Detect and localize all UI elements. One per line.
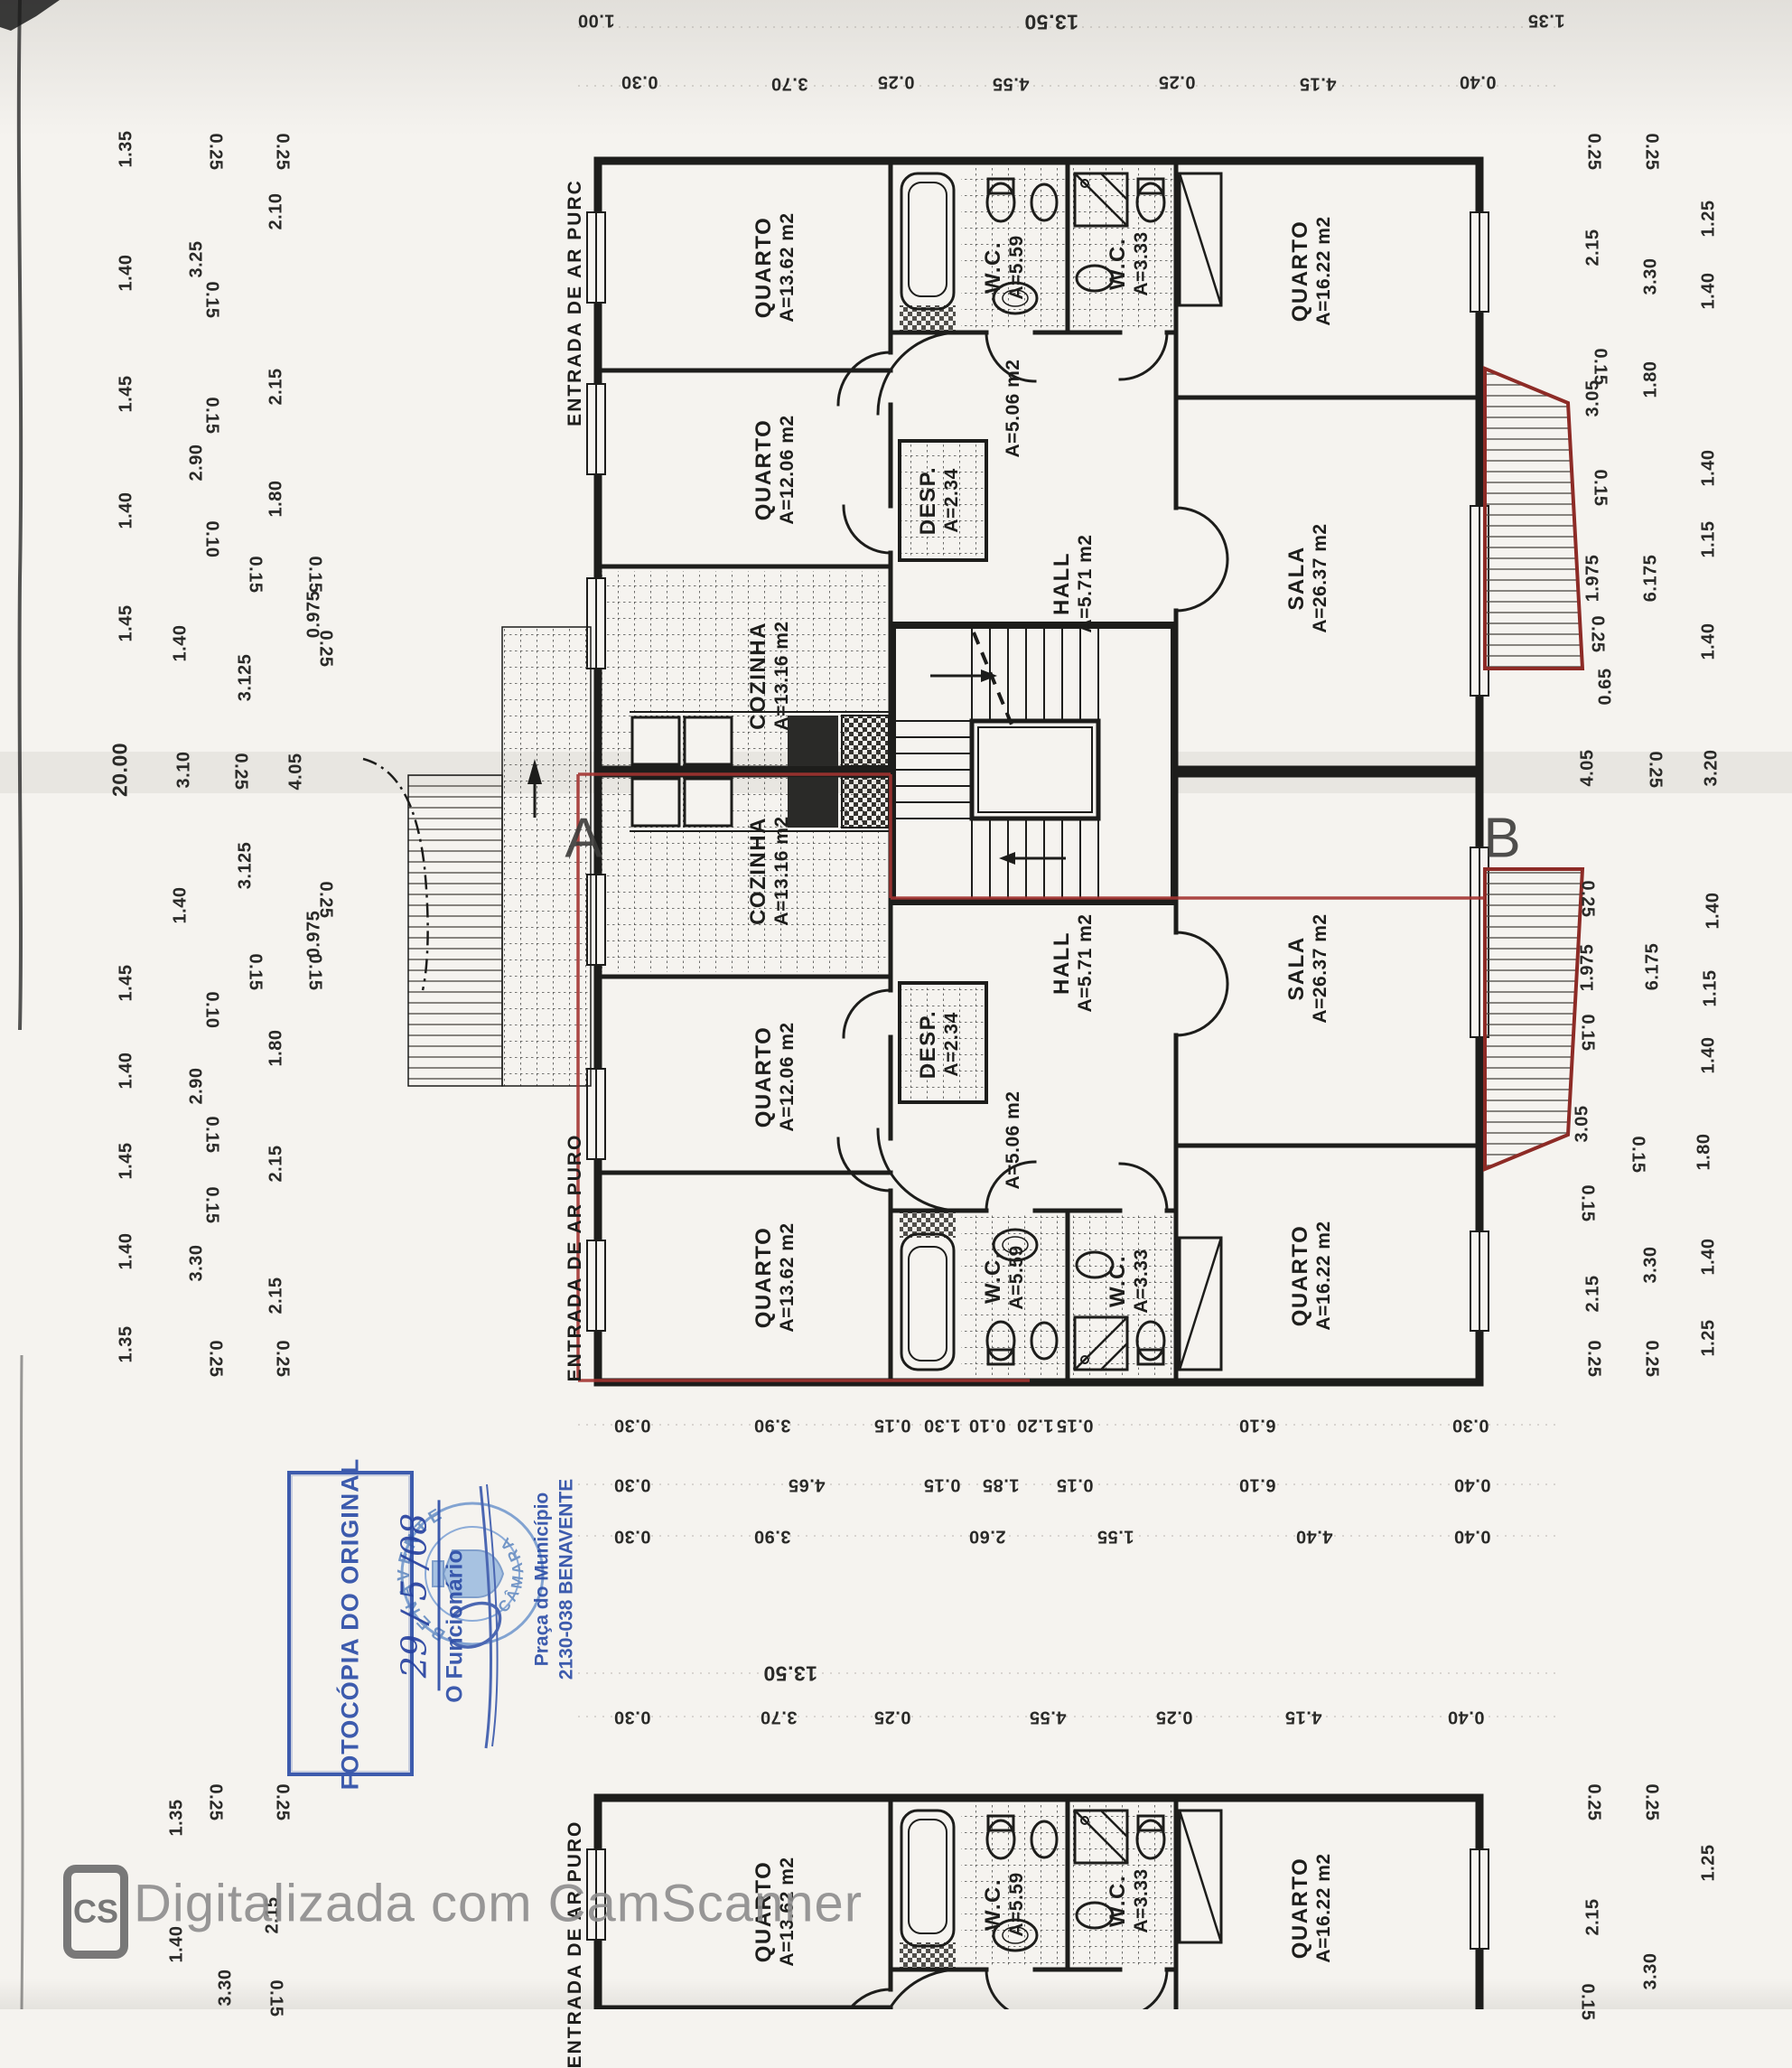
dimension-label: 1.25: [1699, 1845, 1720, 1882]
dimension-label: 1.40: [1699, 623, 1720, 660]
dimension-label: 0.15: [1628, 1137, 1648, 1174]
dimension-label: 0.15: [1577, 1984, 1598, 2021]
dimension-label: 0.25: [1641, 1784, 1662, 1821]
dimension-label: 1.45: [117, 605, 137, 642]
room-label: W.C.A=3.33: [1106, 1249, 1152, 1313]
dimension-label: 4.15: [1300, 73, 1337, 94]
room-label: QUARTOA=13.62 m2: [752, 1222, 798, 1332]
dimension-label: 0.25: [315, 631, 336, 668]
dimension-label: 0.15: [1577, 1185, 1598, 1222]
dimension-label: 4.15: [1285, 1707, 1322, 1727]
dimension-label: 0.25: [272, 134, 293, 171]
dimension-label: 2.15: [1583, 1899, 1604, 1936]
room-area: A=16.22 m2: [1313, 1853, 1335, 1962]
room-name: HALL: [1050, 914, 1075, 1013]
room-name: DESP.: [917, 1010, 941, 1079]
room-name: W.C.: [982, 1872, 1006, 1936]
dimension-label: 3.70: [771, 73, 808, 94]
room-name: SALA: [1285, 523, 1310, 632]
dimension-label: 0.15: [201, 282, 222, 319]
room-name: QUARTO: [1289, 216, 1313, 325]
dimension-label: 0.25: [272, 1784, 293, 1821]
room-area: A=5.06 m2: [1003, 1091, 1024, 1190]
room-label: QUARTOA=16.22 m2: [1289, 1853, 1334, 1962]
room-area: A=5.71 m2: [1075, 914, 1097, 1013]
dimension-label: 4.05: [1578, 750, 1599, 787]
dimension-label: 0.25: [1583, 1784, 1604, 1821]
scanned-floor-plan-page: { "page": { "width": 1984, "height": 222…: [0, 0, 1792, 2009]
dimension-label: 0.25: [1641, 1341, 1662, 1378]
room-area: A=2.34: [941, 1010, 963, 1079]
dimension-label: 4.55: [1030, 1707, 1067, 1727]
dimension-label: 2.15: [266, 1277, 287, 1315]
section-marker-b: B: [1483, 807, 1520, 871]
dimension-label: 13.50: [1024, 10, 1078, 34]
dimension-label: 1.40: [171, 887, 191, 924]
room-area: A=5.59: [1006, 1245, 1028, 1309]
room-name: W.C.: [982, 235, 1006, 299]
dimension-label: 0.25: [878, 71, 915, 92]
dimension-label: 0.15: [201, 1117, 222, 1154]
room-name: QUARTO: [752, 1222, 777, 1332]
room-label: QUARTOA=16.22 m2: [1289, 1221, 1334, 1330]
room-name: QUARTO: [1289, 1221, 1313, 1330]
dimension-label: 0.25: [1645, 752, 1666, 789]
dimension-label: 0.15: [1057, 1474, 1094, 1495]
dimension-label: 4.05: [286, 753, 307, 791]
room-area: A=3.33: [1131, 1249, 1153, 1313]
dimension-label: 3.20: [1702, 750, 1722, 787]
dimension-label: 0.15: [304, 557, 325, 594]
room-name: QUARTO: [752, 1022, 777, 1131]
dimension-label: 2.15: [1583, 1276, 1604, 1313]
dimension-label: 0.30: [614, 1526, 651, 1547]
dimension-label: 0.15: [201, 398, 222, 435]
camscanner-watermark-text: Digitalizada com CamScanner: [134, 1874, 863, 1934]
room-area: A=16.22 m2: [1313, 1221, 1335, 1330]
room-area: A=13.62 m2: [777, 1222, 798, 1332]
stamp-address: Praça do Município 2130-038 BENAVENTE: [530, 1479, 580, 1680]
dimension-label: 1.00: [578, 10, 615, 31]
dimension-label: 3.10: [174, 752, 195, 789]
dimension-label: 2.90: [187, 1068, 208, 1105]
dimension-label: 1.40: [1699, 1037, 1720, 1074]
room-area: A=2.34: [941, 466, 963, 535]
dimension-label: 1.40: [117, 1233, 137, 1270]
room-area: A=13.16 m2: [771, 621, 793, 730]
dimension-label: 1.45: [117, 1143, 137, 1180]
dimension-label: 0.30: [614, 1474, 651, 1495]
dimension-label: 0.30: [1452, 1415, 1489, 1436]
dimension-label: 0.25: [1577, 881, 1598, 918]
dimension-label: 13.50: [763, 1661, 817, 1686]
room-label: QUARTOA=12.06 m2: [752, 415, 798, 524]
room-label: W.C.A=3.33: [1106, 231, 1152, 295]
room-name: SALA: [1285, 913, 1310, 1023]
room-area: A=13.16 m2: [771, 816, 793, 925]
room-area: A=26.37 m2: [1310, 913, 1331, 1023]
dimension-label: 1.80: [266, 1030, 287, 1067]
dimension-label: 0.15: [201, 1187, 222, 1224]
dimension-label: 0.40: [1454, 1526, 1491, 1547]
dimension-label: 2.15: [1583, 229, 1604, 267]
dimension-label: 0.25: [1587, 616, 1608, 653]
room-label: W.C.A=3.33: [1106, 1868, 1152, 1932]
dimension-label: 4.55: [993, 73, 1030, 94]
dimension-label: 0.25: [874, 1707, 911, 1727]
dimension-label: 2.90: [187, 444, 208, 482]
dimension-label: 0.10: [201, 992, 222, 1029]
dimension-label: 1.30: [924, 1415, 961, 1436]
dimension-label: 0.30: [614, 1707, 651, 1727]
dimension-label: 3.30: [1641, 1953, 1662, 1990]
scan-fold-band: [0, 752, 1792, 793]
dimension-label: 20.00: [108, 743, 133, 797]
dimension-label: 2.15: [266, 369, 287, 406]
dimension-label: 3.90: [754, 1526, 791, 1547]
dimension-label: 3.30: [187, 1245, 208, 1282]
photocopy-stamp-title: FOTOCÓPIA DO ORIGINAL: [337, 1457, 365, 1790]
dimension-label: 1.15: [1699, 521, 1720, 558]
dimension-label: 1.35: [117, 131, 137, 168]
room-label: W.C.A=5.59: [982, 235, 1027, 299]
room-label: SALAA=26.37 m2: [1285, 913, 1330, 1023]
dimension-label: 1.975: [1583, 555, 1604, 603]
dimension-label: 0.15: [245, 954, 266, 991]
dimension-label: 3.125: [236, 842, 257, 890]
dimension-label: 2.60: [969, 1526, 1006, 1547]
dimension-label: 0.30: [621, 71, 658, 92]
dimension-label: 1.40: [117, 492, 137, 529]
svg-text:CÂMARA: CÂMARA: [495, 1531, 527, 1615]
room-area: A=5.59: [1006, 235, 1028, 299]
dimension-label: 3.90: [754, 1415, 791, 1436]
dimension-label: 3.125: [236, 654, 257, 702]
room-label: DESP.A=2.34: [917, 466, 962, 535]
entrance-air-label: ENTRADA DE AR PURC: [565, 179, 586, 426]
dimension-label: 1.40: [1699, 273, 1720, 310]
dimension-label: 0.25: [1583, 134, 1604, 171]
room-name: W.C.: [1106, 231, 1131, 295]
entrance-air-label: ENTRADA DE AR PURO: [565, 1134, 586, 1382]
room-label: HALLA=5.71 m2: [1050, 535, 1096, 633]
room-area: A=12.06 m2: [777, 1022, 798, 1131]
dimension-label: 0.25: [1641, 134, 1662, 171]
room-label: COZINHAA=13.16 m2: [747, 816, 792, 925]
room-label: W.C.A=5.59: [982, 1872, 1027, 1936]
dimension-label: 1.40: [117, 255, 137, 292]
room-label: QUARTOA=13.62 m2: [752, 212, 798, 322]
dimension-label: 0.25: [1156, 1707, 1193, 1727]
dimension-label: 1.40: [1699, 1239, 1720, 1276]
room-area: A=5.06 m2: [1003, 360, 1024, 458]
room-label: HALLA=5.71 m2: [1050, 914, 1096, 1013]
section-marker-a: A: [565, 807, 602, 871]
dimension-label: 1.20: [1017, 1415, 1054, 1436]
room-name: QUARTO: [752, 212, 777, 322]
dimension-label: 1.25: [1699, 1320, 1720, 1357]
room-name: QUARTO: [1289, 1853, 1313, 1962]
dimension-label: 0.30: [614, 1415, 651, 1436]
dimension-label: 1.80: [266, 481, 287, 518]
dimension-label: 3.05: [1573, 1106, 1593, 1143]
dimension-label: 0.15: [1577, 1015, 1598, 1052]
stamp-handwritten-date: 29 / 5 /08: [395, 1501, 441, 1691]
dimension-label: 0.15: [924, 1474, 961, 1495]
room-label: A=5.06 m2: [1003, 1091, 1024, 1190]
dimension-label: 1.35: [167, 1800, 188, 1837]
dimension-label: 1.45: [117, 965, 137, 1002]
dimension-label: 1.85: [983, 1474, 1020, 1495]
dimension-label: 0.25: [205, 134, 226, 171]
dimension-label: 0.40: [1460, 71, 1497, 92]
dimension-label: 6.175: [1643, 943, 1664, 991]
dimension-label: 4.65: [789, 1474, 826, 1495]
dimension-label: 3.05: [1583, 380, 1604, 417]
room-area: A=13.62 m2: [777, 212, 798, 322]
room-label: SALAA=26.37 m2: [1285, 523, 1330, 632]
dimension-label: 0.10: [201, 521, 222, 558]
room-area: A=26.37 m2: [1310, 523, 1331, 632]
dimension-label: 0.15: [874, 1415, 911, 1436]
room-name: COZINHA: [747, 816, 771, 925]
room-label: A=5.06 m2: [1003, 360, 1024, 458]
dimension-label: 0.15: [1590, 470, 1610, 507]
dimension-label: 0.25: [272, 1341, 293, 1378]
room-name: W.C.: [1106, 1249, 1131, 1313]
dimension-label: 3.30: [1641, 258, 1662, 295]
room-area: A=5.71 m2: [1075, 535, 1097, 633]
room-area: A=3.33: [1131, 1868, 1153, 1932]
dimension-label: 3.30: [1641, 1247, 1662, 1284]
room-area: A=5.59: [1006, 1872, 1028, 1936]
dimension-label: 0.25: [205, 1784, 226, 1821]
room-label: COZINHAA=13.16 m2: [747, 621, 792, 730]
dimension-label: 1.40: [1699, 450, 1720, 487]
room-label: QUARTOA=12.06 m2: [752, 1022, 798, 1131]
room-label: W.C.A=5.59: [982, 1245, 1027, 1309]
dimension-label: 1.45: [117, 376, 137, 413]
dimension-label: 3.30: [216, 1970, 237, 2007]
dimension-label: 1.975: [1578, 944, 1599, 992]
dimension-label: 0.25: [205, 1341, 226, 1378]
dimension-label: 2.15: [266, 1146, 287, 1183]
dimension-label: 1.80: [1694, 1134, 1715, 1171]
stamp-address-line1: Praça do Município: [530, 1479, 555, 1680]
room-area: A=12.06 m2: [777, 415, 798, 524]
dimension-label: 0.40: [1454, 1474, 1491, 1495]
room-area: A=16.22 m2: [1313, 216, 1335, 325]
dimension-label: 1.35: [1528, 10, 1565, 31]
dimension-label: 1.80: [1641, 361, 1662, 398]
dimension-label: 0.15: [1057, 1415, 1094, 1436]
dimension-label: 0.25: [1159, 71, 1196, 92]
dimension-label: 3.70: [761, 1707, 798, 1727]
room-name: COZINHA: [747, 621, 771, 730]
dimension-label: 6.10: [1239, 1474, 1276, 1495]
dimension-label: 1.40: [117, 1053, 137, 1090]
room-name: HALL: [1050, 535, 1075, 633]
room-name: W.C.: [1106, 1868, 1131, 1932]
dimension-label: 1.55: [1097, 1526, 1134, 1547]
dimension-label: 0.15: [266, 1980, 286, 2017]
dimension-label: 0.15: [304, 954, 325, 991]
room-name: W.C.: [982, 1245, 1006, 1309]
dimension-label: 1.15: [1701, 970, 1722, 1007]
dimension-label: 0.15: [245, 557, 266, 594]
room-label: DESP.A=2.34: [917, 1010, 962, 1079]
room-area: A=3.33: [1131, 231, 1153, 295]
dimension-label: 0.65: [1596, 669, 1617, 706]
dimension-label: 1.25: [1699, 201, 1720, 238]
dimension-label: 6.10: [1239, 1415, 1276, 1436]
seal-text-bottom: CÂMARA: [495, 1531, 527, 1615]
dimension-label: 0.975: [304, 911, 325, 959]
room-name: QUARTO: [752, 415, 777, 524]
stamp-address-line2: 2130-038 BENAVENTE: [555, 1479, 579, 1680]
dimension-label: 2.10: [266, 193, 287, 230]
dimension-label: 0.10: [969, 1415, 1006, 1436]
dimension-label: 0.25: [1583, 1341, 1604, 1378]
dimension-label: 0.40: [1448, 1707, 1485, 1727]
dimension-label: 0.25: [230, 753, 251, 791]
camscanner-logo-icon: CS: [63, 1865, 128, 1959]
dimension-label: 3.25: [187, 241, 208, 278]
entrance-air-label: ENTRADA DE AR PURO: [565, 1820, 586, 2068]
dimension-label: 1.35: [117, 1326, 137, 1363]
scan-shadow-top: [0, 0, 1792, 136]
stamp-officer-label: O Funcionário: [443, 1549, 469, 1702]
room-label: QUARTOA=16.22 m2: [1289, 216, 1334, 325]
dimension-label: 6.175: [1641, 555, 1662, 603]
room-name: DESP.: [917, 466, 941, 535]
dimension-label: 4.40: [1296, 1526, 1333, 1547]
dimension-label: 1.40: [1703, 893, 1724, 930]
dimension-label: 1.40: [171, 625, 191, 662]
